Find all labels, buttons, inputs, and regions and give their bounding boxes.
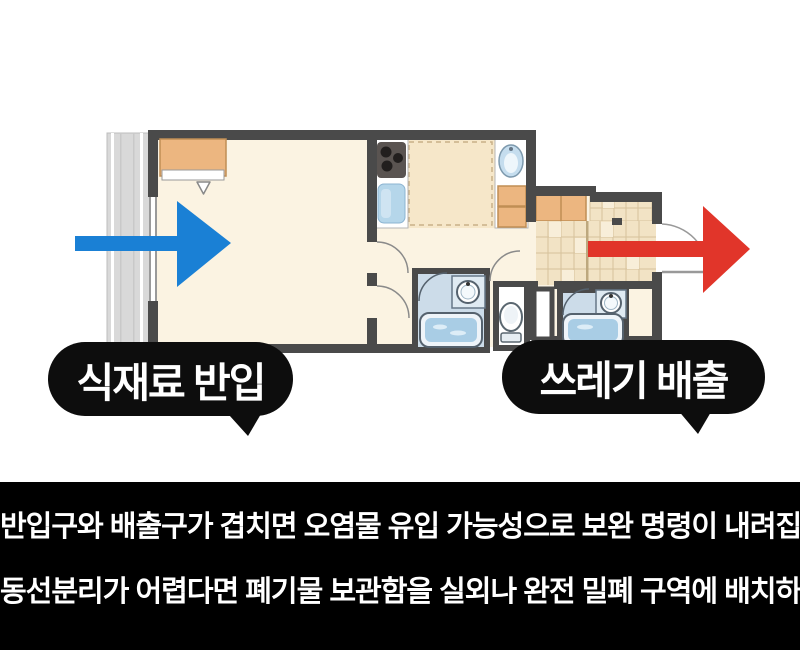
trash-outflow-bubble: 쓰레기 배출 [502, 340, 765, 414]
kitchen-counter [374, 139, 408, 228]
caption-panel: 반입구와 배출구가 겹치면 오염물 유입 가능성으로 보완 명령이 내려집니다.… [0, 482, 800, 650]
caption-line-1: 반입구와 배출구가 겹치면 오염물 유입 가능성으로 보완 명령이 내려집니다. [0, 503, 800, 545]
storage-column [534, 289, 552, 339]
bathroom-left [415, 271, 487, 350]
laundry-area [495, 139, 528, 228]
ingredient-inflow-label: 식재료 반입 [77, 349, 265, 409]
ingredient-inflow-bubble: 식재료 반입 [48, 342, 293, 416]
trash-outflow-label: 쓰레기 배출 [540, 347, 728, 407]
entryway [536, 195, 656, 285]
slide: 식재료 반입 쓰레기 배출 반입구와 배출구가 겹치면 오염물 유입 가능성으로… [0, 0, 800, 650]
caption-line-2: 동선분리가 어렵다면 폐기물 보관함을 실외나 완전 밀폐 구역에 배치하세요. [0, 568, 800, 610]
kitchen [406, 139, 495, 228]
toilet-room [496, 284, 527, 348]
